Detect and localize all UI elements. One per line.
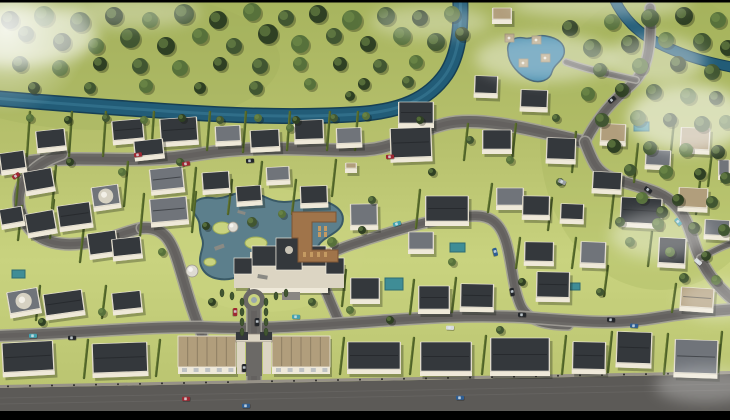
house — [111, 236, 146, 264]
house — [90, 184, 124, 215]
house — [249, 129, 283, 156]
fence-post — [161, 382, 163, 384]
house — [615, 331, 655, 371]
fence-post — [623, 374, 625, 376]
fog-patch — [605, 36, 705, 84]
car — [182, 397, 191, 402]
lounge-chair — [303, 252, 306, 257]
house — [482, 130, 515, 157]
house — [235, 185, 265, 210]
fence-post — [381, 378, 383, 380]
house — [6, 287, 45, 322]
fountain — [251, 297, 257, 303]
car — [68, 336, 77, 341]
fog-patch — [610, 211, 710, 259]
house — [572, 342, 609, 378]
fog-patch — [475, 34, 615, 82]
fence-post — [293, 380, 295, 382]
cypress-tree — [284, 289, 288, 297]
fence-post — [557, 375, 559, 377]
fence-post — [205, 382, 207, 384]
house — [22, 167, 59, 199]
car — [242, 404, 251, 409]
cypress-tree — [264, 298, 268, 306]
pond-island — [204, 258, 216, 266]
house — [300, 185, 331, 211]
fence-post — [51, 385, 53, 387]
dome-gazebo-highlight — [230, 224, 234, 228]
house — [579, 242, 608, 272]
house — [418, 286, 453, 317]
car — [241, 364, 246, 373]
fence-post — [117, 383, 119, 385]
house — [520, 90, 551, 116]
house — [536, 272, 573, 306]
fence-post — [139, 383, 141, 385]
fence-post — [95, 384, 97, 386]
cypress-tree — [240, 308, 244, 316]
clubhouse-roof — [252, 246, 276, 266]
fence-post — [645, 373, 647, 375]
lounge-chair — [317, 252, 320, 257]
car — [386, 154, 395, 159]
letterbox-bottom — [0, 411, 730, 420]
car — [246, 158, 255, 163]
car — [518, 313, 527, 318]
house — [496, 188, 527, 213]
lounge-chair — [324, 226, 327, 231]
entrance-gate — [178, 332, 332, 377]
clubhouse-roof — [234, 258, 252, 274]
scene-canvas — [0, 0, 730, 420]
car — [630, 323, 639, 328]
house — [591, 171, 625, 198]
fence-post — [315, 379, 317, 381]
house — [0, 206, 29, 233]
lounge-chair — [318, 226, 321, 231]
house — [545, 137, 578, 167]
fence-post — [7, 385, 9, 387]
car — [29, 334, 38, 339]
house — [201, 171, 233, 198]
cypress-tree — [220, 289, 224, 297]
house — [560, 204, 587, 228]
car — [607, 317, 616, 322]
house — [490, 338, 553, 379]
gate-pier — [263, 342, 271, 374]
house — [1, 341, 57, 381]
cypress-tree — [264, 328, 268, 336]
fence-post — [73, 384, 75, 386]
house — [111, 290, 146, 318]
car — [292, 315, 301, 320]
house — [350, 278, 383, 307]
house — [214, 125, 244, 149]
cypress-tree — [264, 318, 268, 326]
cypress-tree — [240, 298, 244, 306]
fence-post — [359, 379, 361, 381]
lounge-chair — [324, 252, 327, 257]
house — [149, 166, 188, 199]
cypress-tree — [240, 328, 244, 336]
cypress-tree — [230, 292, 234, 300]
house — [42, 289, 88, 324]
house — [398, 102, 437, 131]
house — [91, 342, 151, 381]
house — [266, 166, 294, 188]
swimming-pool — [385, 278, 403, 290]
swimming-pool — [450, 243, 465, 252]
house — [149, 196, 192, 230]
fence-post — [403, 378, 405, 380]
cypress-tree — [240, 318, 244, 326]
fence-post — [227, 381, 229, 383]
cypress-tree — [274, 292, 278, 300]
house — [425, 196, 472, 229]
fence-post — [337, 379, 339, 381]
dome-gazebo — [228, 222, 238, 232]
house — [133, 138, 168, 164]
fence-post — [271, 380, 273, 382]
aerial-community-render — [0, 0, 730, 420]
car — [456, 396, 465, 401]
house — [336, 127, 365, 151]
cypress-tree — [264, 308, 268, 316]
letterbox-top — [0, 0, 730, 3]
clubhouse-dome — [285, 246, 293, 254]
lounge-chair — [310, 252, 313, 257]
car — [254, 318, 259, 327]
fence-post — [29, 385, 31, 387]
house — [492, 8, 515, 27]
car — [446, 326, 455, 331]
house — [389, 127, 435, 166]
house — [460, 284, 497, 316]
house — [24, 209, 61, 241]
arcade-garage — [178, 336, 238, 377]
swimming-pool — [12, 270, 25, 278]
house — [408, 232, 437, 257]
house — [56, 201, 96, 235]
house — [420, 342, 475, 379]
fog-patch — [370, 6, 490, 38]
car — [232, 308, 237, 317]
house — [35, 128, 70, 156]
lounge-chair — [318, 232, 321, 237]
arcade-garage — [272, 336, 332, 377]
fence-post — [183, 382, 185, 384]
gate-driveway — [246, 342, 262, 376]
house — [474, 76, 501, 102]
dome-gazebo-highlight — [188, 267, 193, 272]
house — [524, 242, 557, 270]
lounge-chair — [324, 232, 327, 237]
house — [347, 342, 404, 377]
house — [522, 196, 553, 224]
